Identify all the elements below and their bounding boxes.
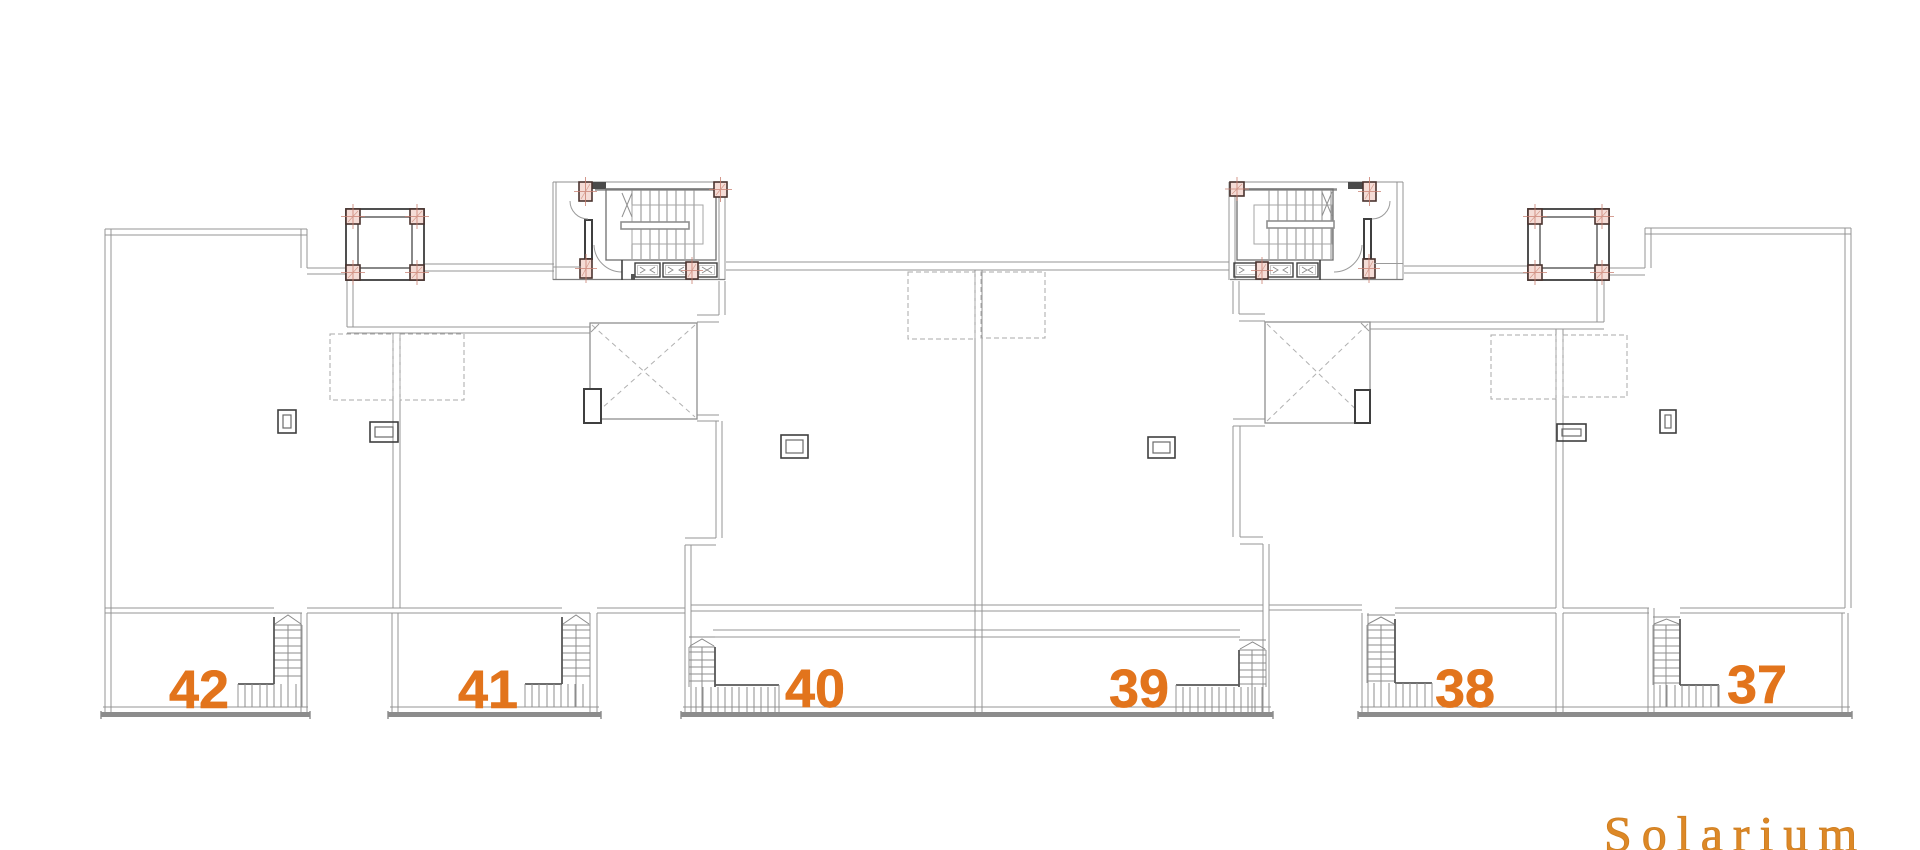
svg-text:Solarium: Solarium [1604, 806, 1867, 850]
svg-text:39: 39 [1109, 659, 1169, 719]
svg-text:40: 40 [785, 659, 845, 719]
svg-text:41: 41 [458, 660, 518, 720]
svg-text:42: 42 [169, 660, 229, 720]
svg-text:37: 37 [1727, 655, 1787, 715]
svg-text:38: 38 [1435, 659, 1495, 719]
